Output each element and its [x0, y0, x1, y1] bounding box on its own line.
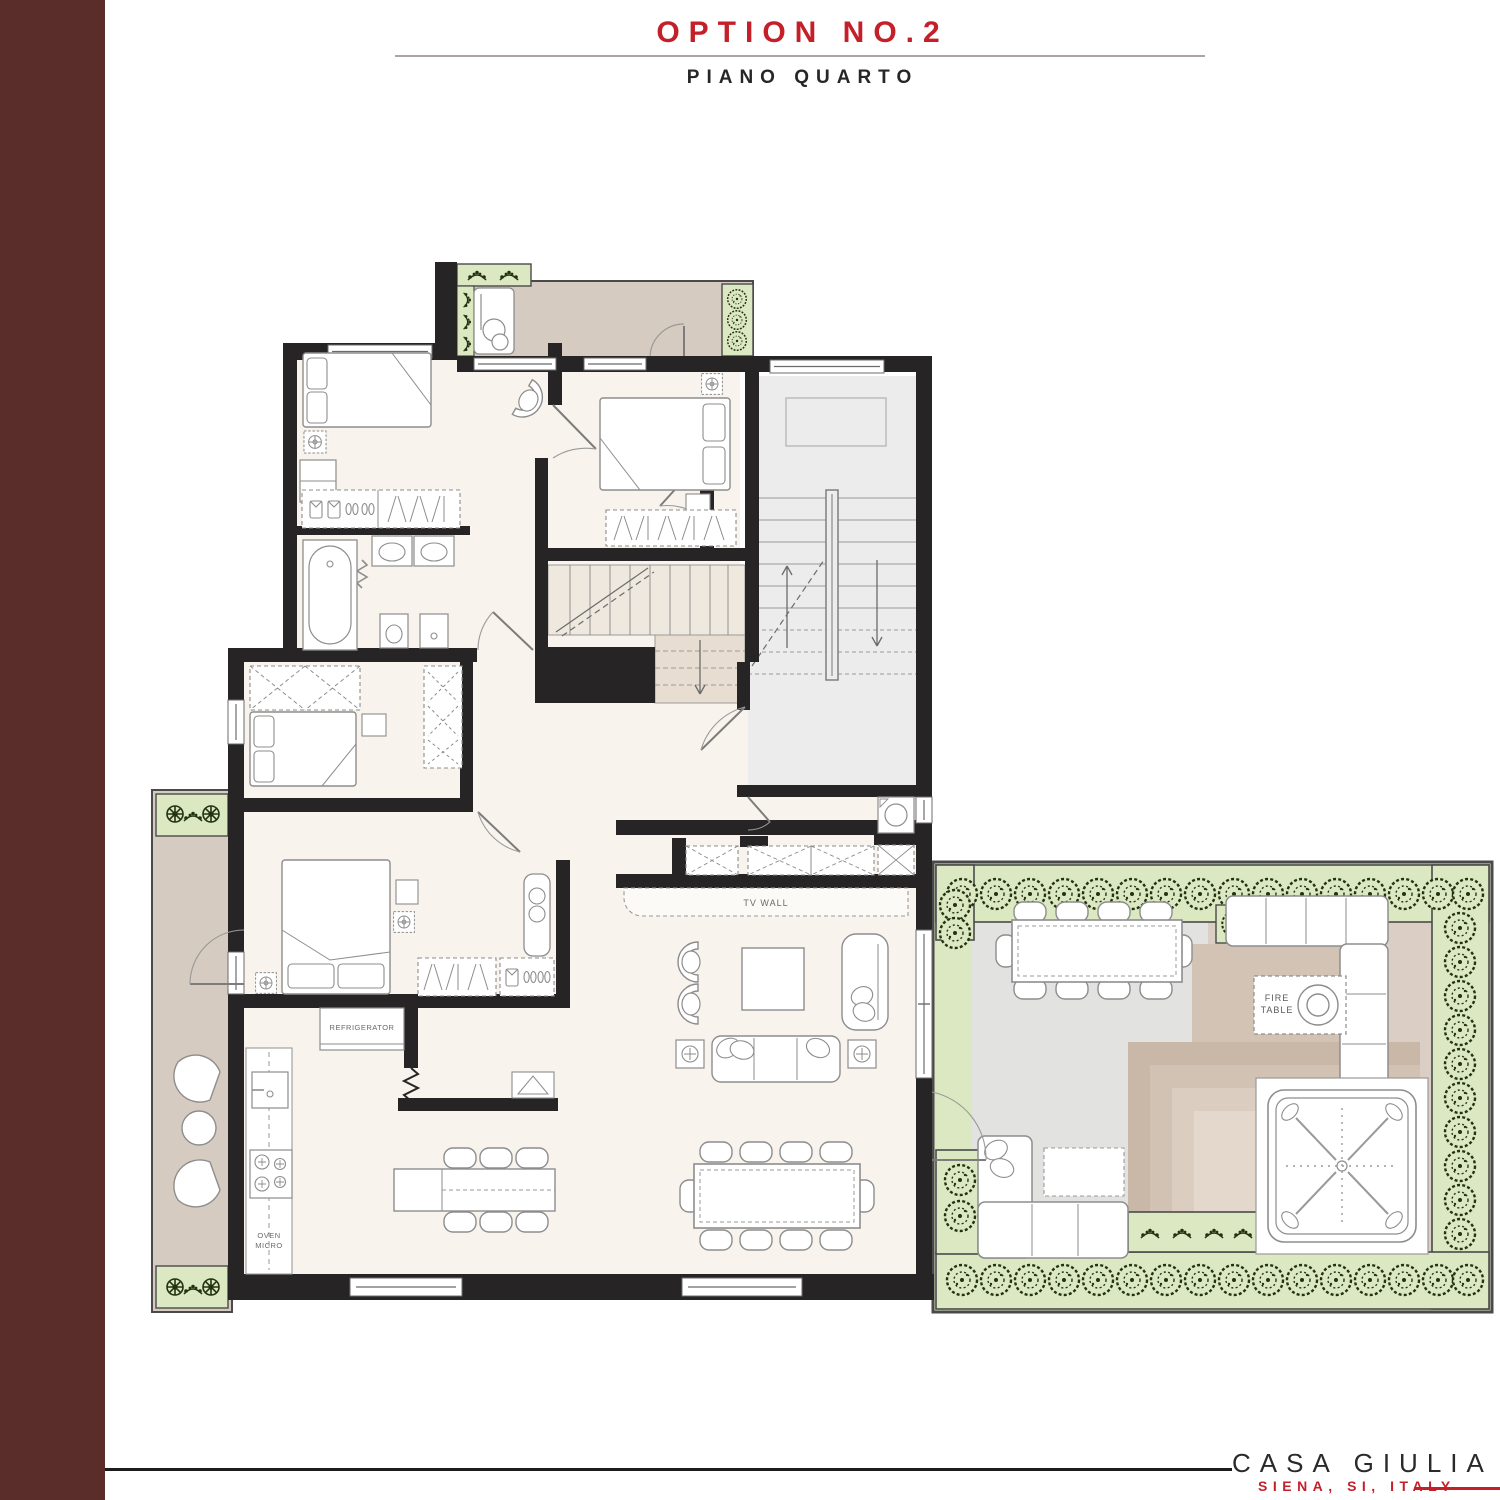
master-wardrobe: [418, 958, 554, 996]
bedroom-2: [600, 374, 736, 546]
kitchen-counter: OVEN MICRO: [246, 1048, 292, 1274]
footer-accent-line: [1414, 1487, 1500, 1490]
master-bench: [524, 874, 550, 956]
hot-tub: [1256, 1078, 1428, 1254]
left-terrace: [152, 790, 232, 1312]
side-table-right: [848, 1040, 876, 1068]
top-balcony: [457, 264, 753, 358]
stairwell: [748, 376, 916, 790]
bedroom-1-closet: [302, 490, 460, 528]
floor-plan: FIRE TABLE: [0, 0, 1500, 1500]
fire-table-label-1: FIRE: [1265, 993, 1290, 1003]
stove: [250, 1150, 292, 1198]
footer-project-name: CASA GIULIA: [1232, 1448, 1493, 1479]
footer-location: SIENA, SI, ITALY: [1258, 1478, 1456, 1494]
corner-appliance: [512, 1072, 554, 1098]
chaise: [842, 934, 888, 1030]
refrigerator-label: REFRIGERATOR: [330, 1023, 395, 1032]
tv-wall: TV WALL: [624, 888, 908, 916]
fire-table-label-2: TABLE: [1261, 1005, 1294, 1015]
bidet: [420, 614, 448, 648]
footer-divider-line: [105, 1468, 1232, 1471]
page-root: FLOOR PLANS OPTION NO.2 PIANO QUARTO: [0, 0, 1500, 1500]
tv-wall-label: TV WALL: [743, 898, 788, 908]
oven-label-1: OVEN: [257, 1231, 280, 1240]
oven-label-2: MICRO: [255, 1241, 283, 1250]
refrigerator: REFRIGERATOR: [320, 1008, 404, 1050]
side-table-left: [676, 1040, 704, 1068]
balcony-lounger: [474, 288, 514, 354]
toilet: [380, 614, 408, 648]
sofa: [712, 1034, 840, 1082]
right-terrace: FIRE TABLE: [933, 862, 1492, 1312]
washer: [878, 797, 914, 833]
bedroom-2-closet: [606, 510, 736, 546]
bedroom-3: [250, 666, 462, 786]
bedroom-3-wardrobe: [424, 666, 462, 768]
fire-table: FIRE TABLE: [1254, 976, 1346, 1034]
